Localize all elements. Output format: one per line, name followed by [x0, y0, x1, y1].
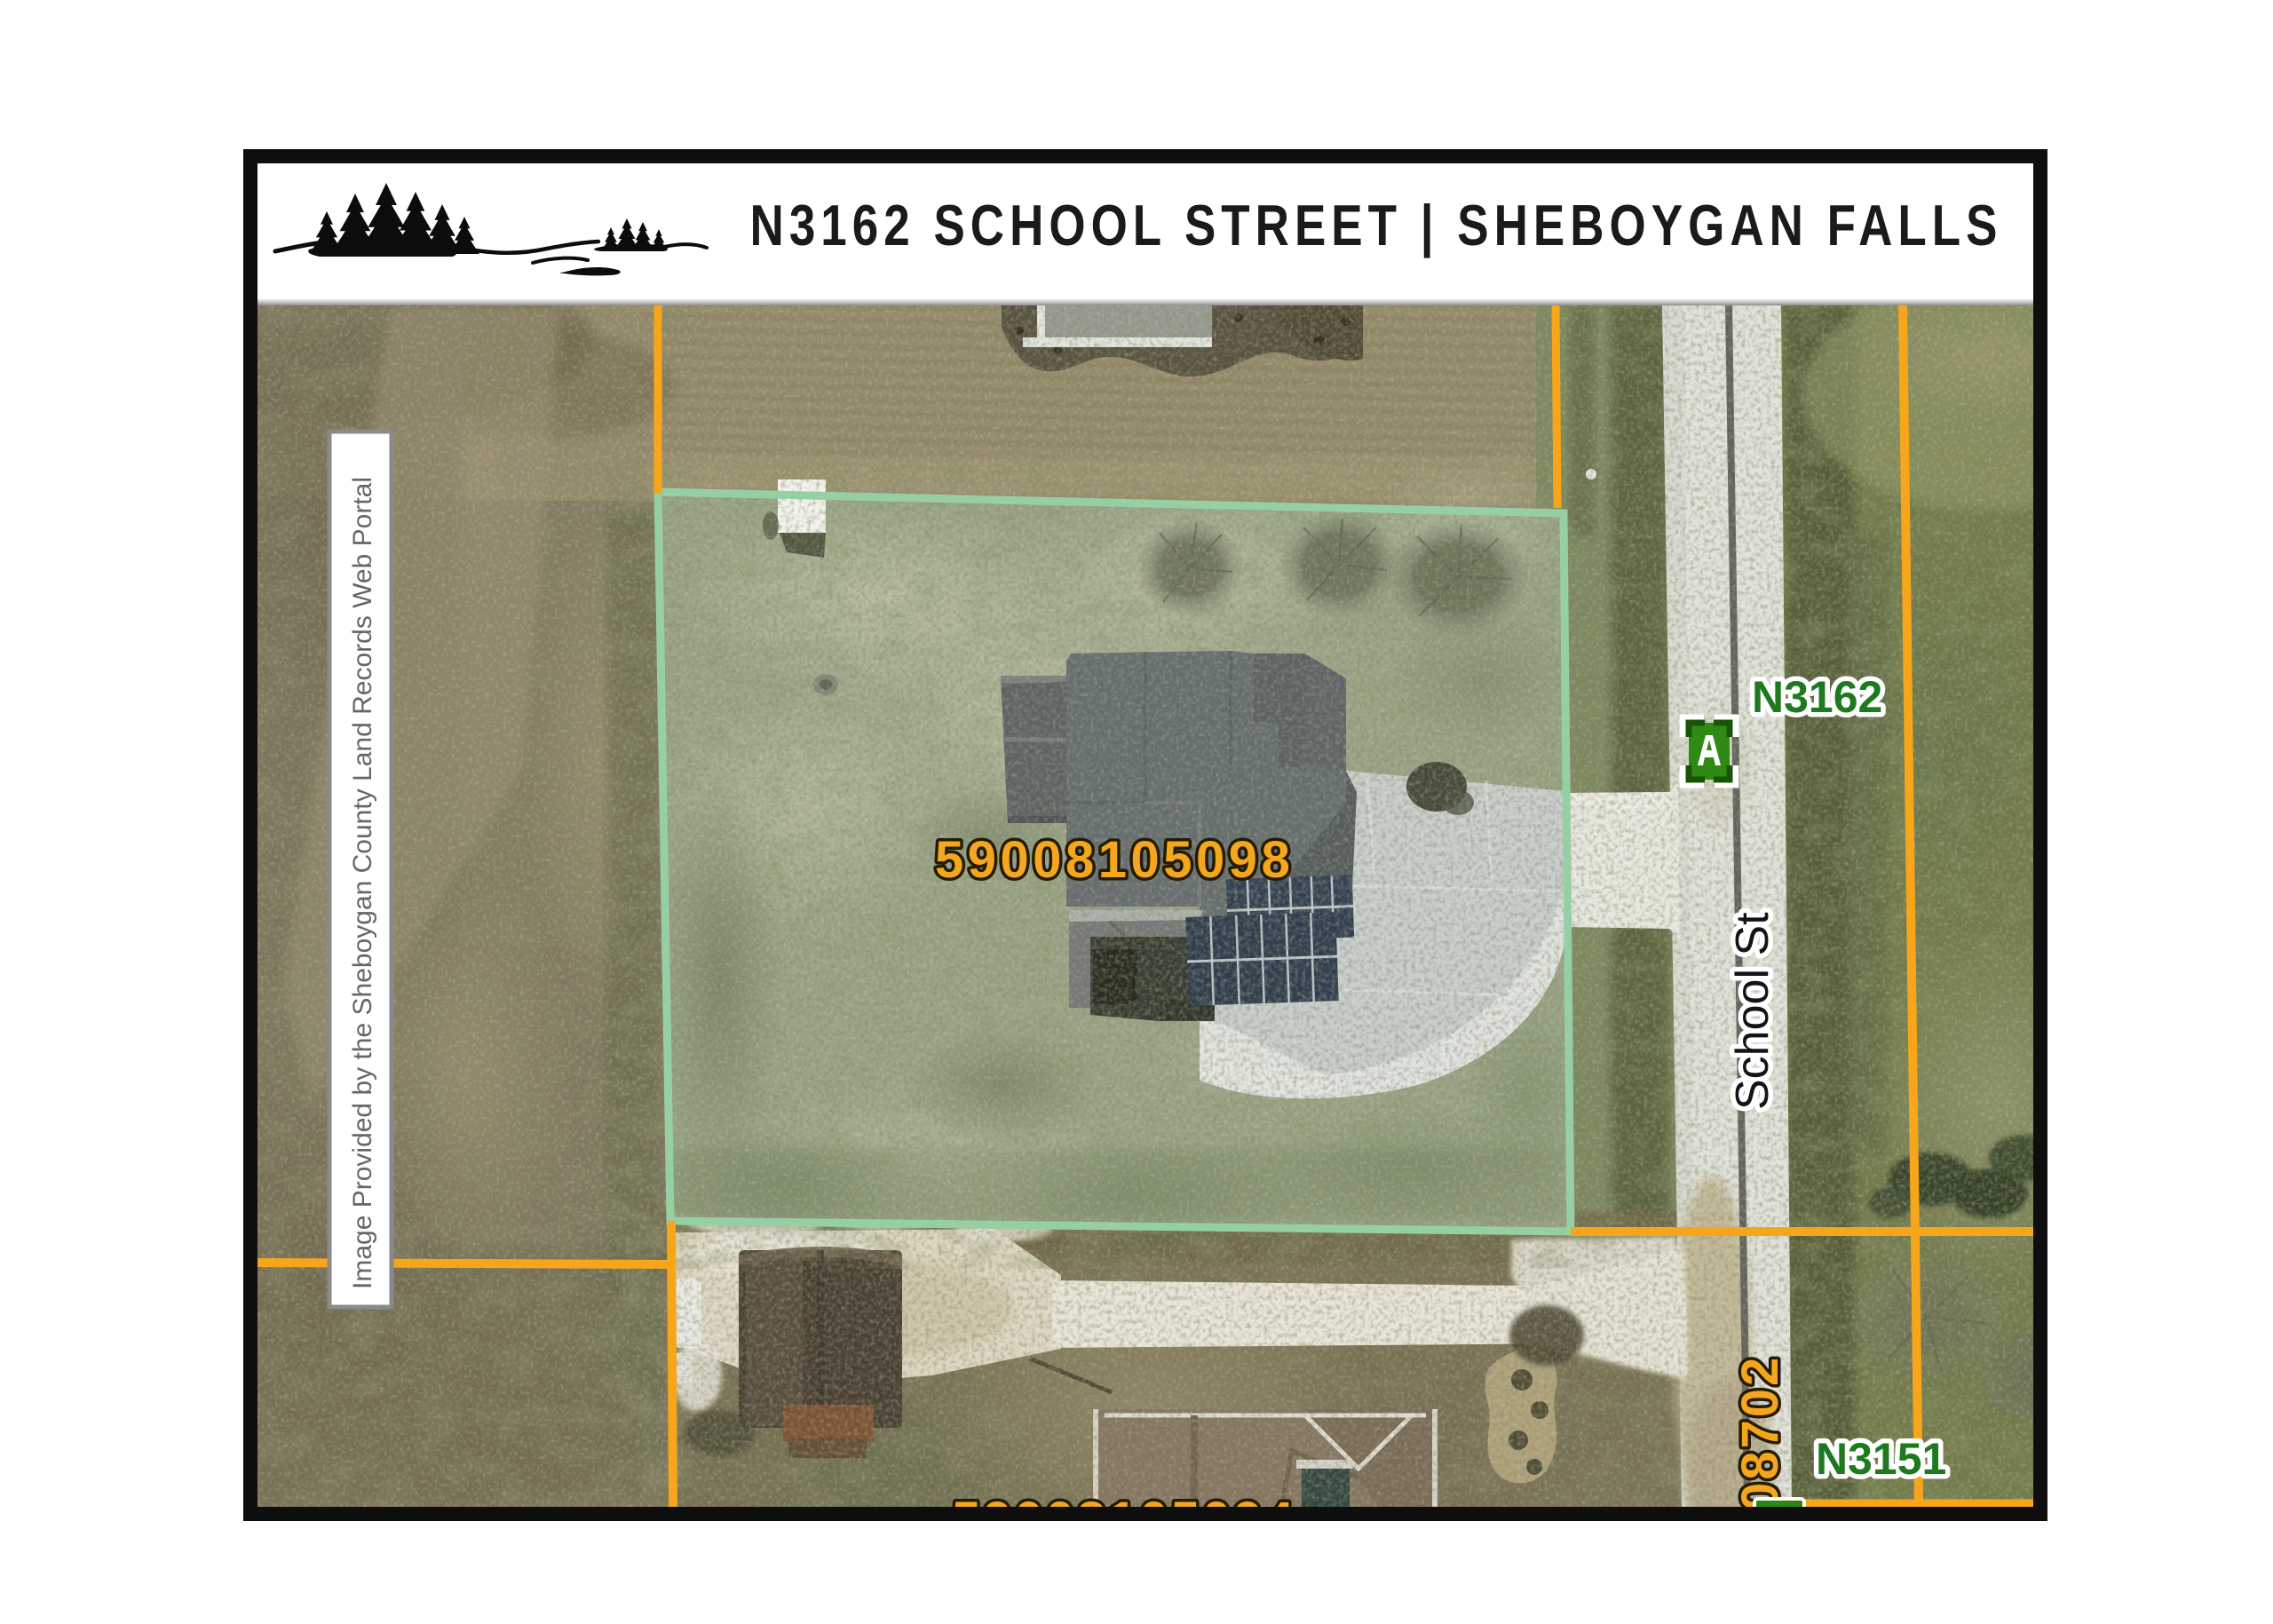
- svg-text:59008105098: 59008105098: [935, 831, 1294, 889]
- svg-text:School St: School St: [1727, 912, 1778, 1110]
- svg-text:59008105094: 59008105094: [952, 1492, 1296, 1507]
- svg-text:Image Provided by the Sheboyga: Image Provided by the Sheboygan County L…: [348, 477, 377, 1289]
- svg-text:08702: 08702: [1731, 1355, 1789, 1507]
- svg-text:N3151: N3151: [1816, 1434, 1946, 1484]
- svg-text:N3162: N3162: [1752, 672, 1882, 722]
